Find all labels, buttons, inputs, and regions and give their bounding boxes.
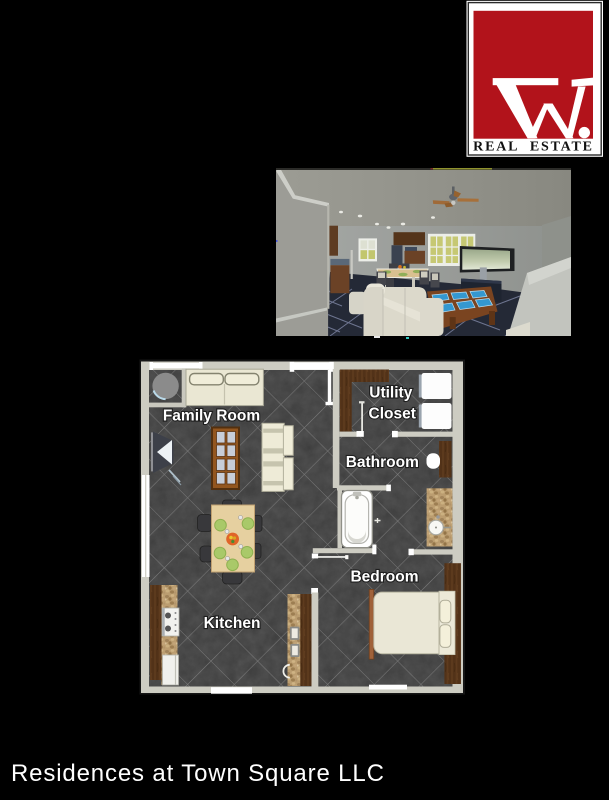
svg-text:REAL ESTATE: REAL ESTATE	[473, 140, 594, 155]
svg-text:Closet: Closet	[369, 406, 416, 423]
svg-text:Bathroom: Bathroom	[346, 454, 419, 471]
svg-text:Kitchen: Kitchen	[204, 615, 261, 632]
svg-text:Bedroom: Bedroom	[350, 569, 418, 586]
svg-text:Family Room: Family Room	[163, 408, 260, 425]
svg-text:Utility: Utility	[369, 385, 412, 402]
